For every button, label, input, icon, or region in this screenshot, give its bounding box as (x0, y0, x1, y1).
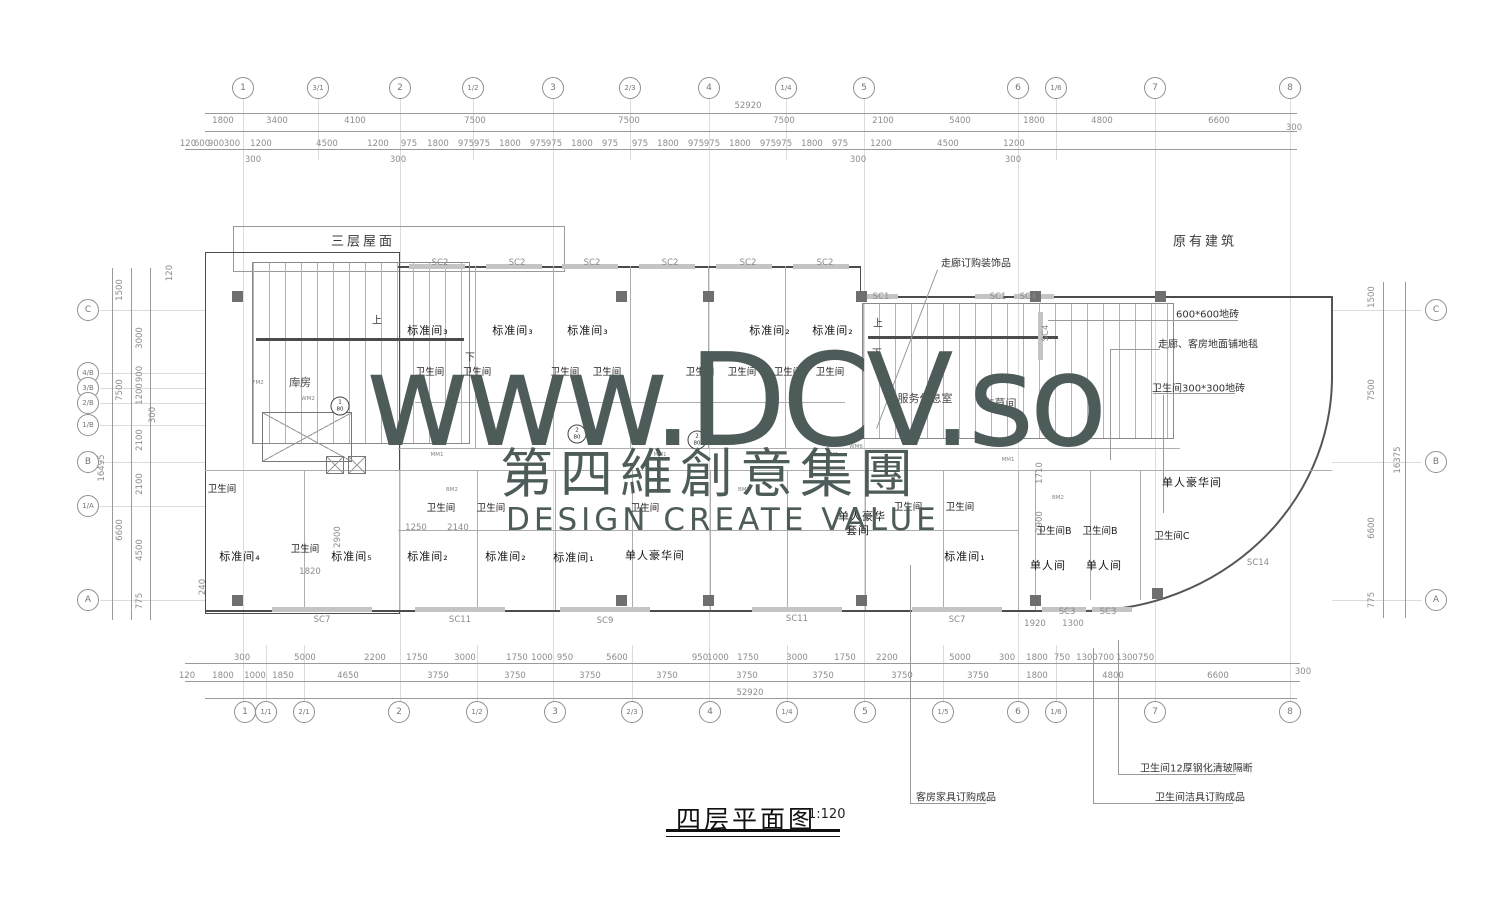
dimension-label: 3750 (656, 671, 678, 681)
dimension-label: 4100 (344, 116, 366, 126)
grid-bubble: 1/A (77, 495, 99, 517)
dim-line (205, 131, 1297, 132)
dimension-label: 750 (1138, 653, 1154, 663)
dimension-label: 1200 (367, 139, 389, 149)
duct-box (348, 456, 366, 474)
drawing-title: 四层平面图 (676, 800, 816, 836)
grid-bubble: 2/B (77, 392, 99, 414)
grid-line (266, 645, 267, 703)
dimension-label: 975 (474, 139, 490, 149)
grid-line (1332, 310, 1422, 311)
dim-line (185, 681, 1300, 682)
grid-bubble: 8 (1279, 77, 1301, 99)
dimension-label: 7500 (464, 116, 486, 126)
grid-bubble: 1/4 (775, 77, 797, 99)
grid-line (786, 98, 787, 160)
dimension-label: 3750 (812, 671, 834, 681)
dimension-label: 4650 (337, 671, 359, 681)
dimension-label: 300 (224, 139, 240, 149)
dimension-label: 3750 (891, 671, 913, 681)
room-divider (1140, 470, 1141, 600)
dimension-label: 1800 (729, 139, 751, 149)
grid-line (473, 98, 474, 160)
dimension-label: 6600 (115, 519, 125, 541)
grid-bubble: 4 (699, 701, 721, 723)
door-label: BM2 (1052, 495, 1064, 501)
door-label: FM2 (252, 380, 263, 386)
watermark-slogan: DESIGN CREATE VALUE (506, 505, 940, 536)
dimension-label: 1300 (1062, 619, 1084, 629)
grid-line (100, 403, 205, 404)
dim-line (112, 268, 113, 620)
column (616, 595, 627, 606)
dimension-label: 975 (688, 139, 704, 149)
dimension-label: 700 (1098, 653, 1114, 663)
dimension-label: 300 (1286, 123, 1302, 133)
window-label: SC2 (740, 258, 757, 268)
dim-line (185, 149, 1297, 150)
dimension-label: 1850 (272, 671, 294, 681)
window-segment (752, 607, 842, 612)
dimension-label: 1750 (406, 653, 428, 663)
grid-bubble: 8 (1279, 701, 1301, 723)
duct-box (326, 456, 344, 474)
dimension-label: 1800 (1023, 116, 1045, 126)
door-label: WM2 (301, 396, 315, 402)
grid-bubble: 2 (388, 701, 410, 723)
dimension-label: 1750 (737, 653, 759, 663)
note-label: 卫生间洁具订购成品 (1155, 789, 1245, 804)
dimension-label: 975 (776, 139, 792, 149)
dimension-label: 3000 (454, 653, 476, 663)
dimension-label: 900 (135, 366, 145, 382)
room-label: 单人豪华间 (625, 547, 685, 563)
room-label: 标准间₄ (219, 548, 260, 564)
room-divider (304, 470, 305, 610)
dimension-label: 7500 (115, 379, 125, 401)
dimension-label: 1000 (531, 653, 553, 663)
dimension-total: 52920 (734, 101, 761, 111)
dimension-total: 52920 (736, 688, 763, 698)
dimension-label: 5000 (294, 653, 316, 663)
window-label: SC4 (1020, 292, 1037, 302)
dimension-label: 1800 (657, 139, 679, 149)
dimension-label: 3750 (504, 671, 526, 681)
dimension-label: 1800 (801, 139, 823, 149)
dimension-label: 1300 (1116, 653, 1138, 663)
dimension-label: 3000 (135, 327, 145, 349)
dimension-label: 975 (704, 139, 720, 149)
dim-line (1405, 282, 1406, 618)
column (856, 595, 867, 606)
dimension-label: 120 (165, 265, 175, 281)
grid-line (100, 600, 205, 601)
dimension-label: 300 (390, 155, 406, 165)
grid-bubble: C (77, 299, 99, 321)
note-label: 卫生间300*300地砖 (1152, 380, 1245, 395)
window-segment (912, 607, 1002, 612)
grid-bubble: 5 (853, 77, 875, 99)
leader-line (1110, 349, 1160, 350)
window-label: SC2 (584, 258, 601, 268)
drawing-scale: 1:120 (808, 807, 845, 822)
column (232, 291, 243, 302)
dimension-label: 975 (632, 139, 648, 149)
grid-bubble: 1 (232, 77, 254, 99)
column (616, 291, 627, 302)
grid-bubble: 6 (1007, 77, 1029, 99)
window-segment (272, 607, 372, 612)
grid-bubble: 3 (542, 77, 564, 99)
dimension-label: 16375 (1393, 446, 1403, 473)
window-label: SC3 (1059, 607, 1076, 617)
dimension-label: 3750 (967, 671, 989, 681)
area-label: 三层屋面 (331, 231, 395, 250)
area-label: 原有建筑 (1173, 231, 1237, 250)
dimension-label: 300 (850, 155, 866, 165)
dimension-label: 975 (602, 139, 618, 149)
dimension-label: 1800 (212, 116, 234, 126)
dimension-label: 4800 (1091, 116, 1113, 126)
window-segment (415, 607, 505, 612)
door-label: FM2 (292, 380, 303, 386)
grid-line (100, 506, 205, 507)
dimension-label: 2100 (135, 429, 145, 451)
bathroom-label: 卫生间 (208, 481, 237, 495)
column (703, 595, 714, 606)
grid-bubble: 1/1 (255, 701, 277, 723)
dimension-label: 2100 (872, 116, 894, 126)
dimension-label: 1750 (506, 653, 528, 663)
leader-line (1163, 395, 1164, 513)
window-label: SC3 (1100, 607, 1117, 617)
bathroom-label: 卫生间B (1082, 523, 1117, 537)
dimension-label: 1500 (1367, 286, 1377, 308)
room-label: 标准间₅ (331, 548, 372, 564)
grid-bubble: 2 (389, 77, 411, 99)
window-label: SC11 (786, 614, 808, 624)
grid-line (100, 462, 205, 463)
dimension-label: 1000 (244, 671, 266, 681)
dimension-label: 1800 (1026, 653, 1048, 663)
dimension-label: 4500 (937, 139, 959, 149)
grid-bubble: 4 (698, 77, 720, 99)
grid-bubble: 2/3 (621, 701, 643, 723)
column (856, 291, 867, 302)
grid-bubble: 1/B (77, 414, 99, 436)
grid-line (477, 645, 478, 703)
grid-line (100, 373, 205, 374)
window-label: SC1 (990, 292, 1007, 302)
room-label: 单人间 (1086, 557, 1122, 573)
column (1155, 291, 1166, 302)
dimension-label: 975 (760, 139, 776, 149)
dimension-label: 300 (148, 407, 158, 423)
section-marker: 1 80 (331, 397, 350, 416)
door-label: BM2 (446, 487, 458, 493)
note-label: 客房家具订购成品 (916, 789, 996, 804)
dimension-label: 6600 (1207, 671, 1229, 681)
grid-bubble: 1/5 (932, 701, 954, 723)
column (703, 291, 714, 302)
dimension-label: 240 (198, 579, 208, 595)
dimension-label: 6600 (1208, 116, 1230, 126)
grid-bubble: A (77, 589, 99, 611)
dimension-label: 2140 (447, 523, 469, 533)
grid-bubble: 6 (1007, 701, 1029, 723)
note-label: 600*600地砖 (1176, 306, 1239, 321)
note-label: 走廊、客房地面铺地毯 (1158, 336, 1258, 351)
window-label: SC14 (1247, 558, 1269, 568)
stair-label: 上 (372, 312, 382, 327)
dim-line (205, 698, 1297, 699)
leader-line (1093, 648, 1094, 804)
dimension-label: 7500 (1367, 379, 1377, 401)
grid-bubble: 2/1 (293, 701, 315, 723)
dimension-label: 950 (692, 653, 708, 663)
dimension-label: 750 (1054, 653, 1070, 663)
dim-line (185, 663, 1300, 664)
window-segment (560, 607, 650, 612)
grid-bubble: 1/4 (776, 701, 798, 723)
leader-line (910, 565, 911, 803)
window-label: SC2 (662, 258, 679, 268)
note-label: 卫生间12厚钢化清玻隔断 (1140, 760, 1253, 775)
room-divider (1018, 470, 1019, 610)
dimension-label: 975 (458, 139, 474, 149)
dimension-label: 7500 (773, 116, 795, 126)
dim-line (205, 113, 1297, 114)
window-label: SC9 (597, 616, 614, 626)
bathroom-label: 卫生间 (291, 541, 320, 555)
grid-bubble: 7 (1144, 77, 1166, 99)
dimension-label: 1300 (1076, 653, 1098, 663)
room-label: 单人间 (1030, 557, 1066, 573)
grid-line (1332, 462, 1422, 463)
dimension-label: 300 (245, 155, 261, 165)
dimension-label: 5600 (606, 653, 628, 663)
dimension-label: 4800 (1102, 671, 1124, 681)
room-divider (943, 470, 944, 610)
dimension-label: 775 (135, 593, 145, 609)
window-label: SC2 (817, 258, 834, 268)
grid-bubble: 1/2 (462, 77, 484, 99)
window-label: SC7 (949, 615, 966, 625)
dimension-label: 1820 (299, 567, 321, 577)
dimension-label: 1800 (1026, 671, 1048, 681)
dimension-label: 1750 (834, 653, 856, 663)
grid-line (630, 98, 631, 160)
dimension-label: 900 (208, 139, 224, 149)
room-label: 标准间₁ (553, 549, 594, 565)
dimension-label: 2200 (876, 653, 898, 663)
grid-bubble: 1/6 (1045, 701, 1067, 723)
title-underline (666, 836, 840, 837)
dimension-label: 1200 (250, 139, 272, 149)
dimension-label: 1800 (212, 671, 234, 681)
dimension-label: 1500 (115, 279, 125, 301)
dimension-label: 3750 (427, 671, 449, 681)
room-label: 标准间₁ (944, 548, 985, 564)
dimension-label: 300 (1295, 667, 1311, 677)
dimension-label: 2200 (364, 653, 386, 663)
dimension-label: 2900 (333, 526, 343, 548)
window-label: SC7 (314, 615, 331, 625)
bathroom-label: 卫生间 (427, 500, 456, 514)
dimension-label: 1800 (427, 139, 449, 149)
grid-line (1056, 98, 1057, 160)
bathroom-label: 卫生间C (1154, 528, 1189, 542)
dimension-label: 4500 (316, 139, 338, 149)
dimension-label: 1250 (405, 523, 427, 533)
dim-line (1383, 282, 1384, 618)
dim-line (131, 268, 132, 620)
dimension-label: 1200 (1003, 139, 1025, 149)
grid-bubble: B (77, 451, 99, 473)
grid-bubble: A (1425, 589, 1447, 611)
elevator-shaft (262, 412, 352, 462)
watermark-company: 第四維創意集團 (500, 448, 920, 501)
dimension-label: 975 (832, 139, 848, 149)
dimension-label: 775 (1367, 592, 1377, 608)
dimension-label: 3000 (786, 653, 808, 663)
room-label: 标准间₂ (407, 548, 448, 564)
grid-bubble: 3 (544, 701, 566, 723)
dimension-label: 3750 (579, 671, 601, 681)
grid-bubble: 5 (854, 701, 876, 723)
dimension-label: 1000 (707, 653, 729, 663)
dimension-label: 950 (557, 653, 573, 663)
dimension-label: 1800 (571, 139, 593, 149)
room-divider (399, 470, 400, 610)
room-label: 标准间₂ (485, 548, 526, 564)
bathroom-label: 卫生间 (946, 499, 975, 513)
dimension-label: 2100 (135, 473, 145, 495)
grid-bubble: 1 (234, 701, 256, 723)
dimension-label: 4500 (135, 539, 145, 561)
note-label: 走廊订购装饰品 (941, 255, 1011, 270)
window-label: SC2 (432, 258, 449, 268)
dimension-label: 5000 (949, 653, 971, 663)
column (1030, 595, 1041, 606)
room-label: 单人豪华间 (1162, 474, 1222, 490)
column (232, 595, 243, 606)
grid-line (632, 645, 633, 703)
room-divider (1035, 470, 1036, 610)
dimension-label: 1200 (870, 139, 892, 149)
window-label: SC2 (509, 258, 526, 268)
grid-bubble: C (1425, 299, 1447, 321)
grid-bubble: 1/2 (466, 701, 488, 723)
dim-line (150, 268, 151, 620)
grid-line (943, 645, 944, 703)
dimension-label: 7500 (618, 116, 640, 126)
column (1152, 588, 1163, 599)
grid-bubble: 3/1 (307, 77, 329, 99)
dimension-label: 975 (530, 139, 546, 149)
room-divider (477, 470, 478, 610)
dimension-label: 300 (999, 653, 1015, 663)
dimension-label: 1200 (135, 383, 145, 405)
dimension-label: 975 (401, 139, 417, 149)
dimension-label: 1800 (499, 139, 521, 149)
bathroom-label: 卫生间B (1036, 523, 1071, 537)
grid-bubble: 2/3 (619, 77, 641, 99)
dimension-label: 120 (179, 671, 195, 681)
dimension-label: 3750 (736, 671, 758, 681)
dimension-label: 5400 (949, 116, 971, 126)
window-label: SC1 (873, 292, 890, 302)
grid-bubble: B (1425, 451, 1447, 473)
grid-bubble: 1/6 (1045, 77, 1067, 99)
grid-line (318, 98, 319, 160)
floor-plan-canvas: 13/121/232/341/4561/678 11/12/121/232/34… (0, 0, 1500, 906)
dimension-label: 300 (1005, 155, 1021, 165)
dimension-label: 3400 (266, 116, 288, 126)
grid-line (100, 425, 205, 426)
dimension-label: 6600 (1367, 517, 1377, 539)
window-label: SC11 (449, 615, 471, 625)
dimension-label: 1920 (1024, 619, 1046, 629)
grid-bubble: 7 (1144, 701, 1166, 723)
grid-line (100, 310, 205, 311)
dimension-label: 975 (546, 139, 562, 149)
dimension-label: 300 (234, 653, 250, 663)
leader-line (1110, 349, 1111, 460)
grid-line (1332, 600, 1422, 601)
